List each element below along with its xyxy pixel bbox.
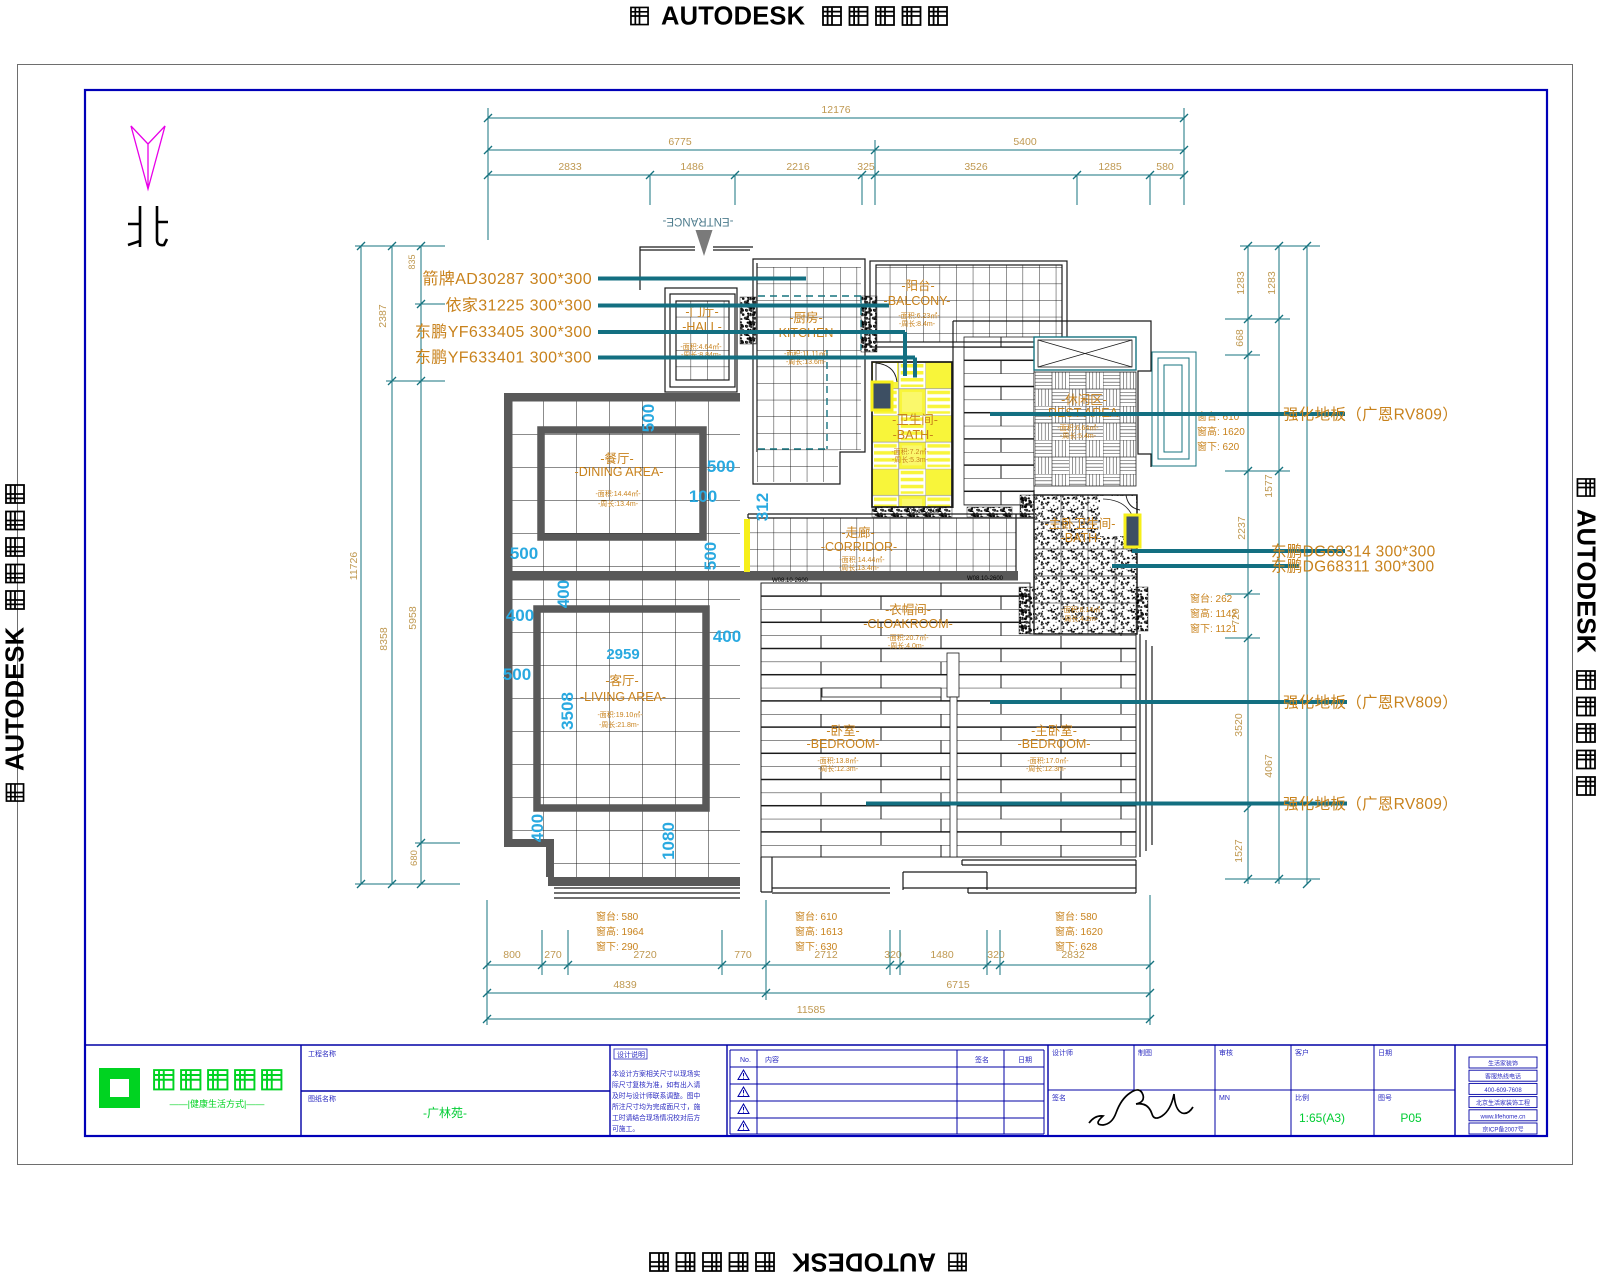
- svg-text:-面积:6.23㎡-: -面积:6.23㎡-: [898, 311, 940, 320]
- svg-text:W08.10-2600: W08.10-2600: [967, 576, 1004, 582]
- svg-text:-面积:13.8㎡-: -面积:13.8㎡-: [817, 756, 859, 765]
- svg-text:可施工。: 可施工。: [612, 1124, 639, 1133]
- svg-text:-周长:4.0m-: -周长:4.0m-: [888, 641, 925, 650]
- svg-text:箭牌AD30287 300*300: 箭牌AD30287 300*300: [422, 269, 592, 288]
- svg-text:强化地板（广恩RV809）: 强化地板（广恩RV809）: [1283, 694, 1458, 712]
- svg-text:日期: 日期: [1378, 1049, 1392, 1057]
- svg-text:3526: 3526: [964, 161, 988, 173]
- svg-text:-BATH-: -BATH-: [893, 428, 934, 442]
- svg-text:400: 400: [554, 580, 573, 608]
- svg-text:-周长:8.4m-: -周长:8.4m-: [899, 319, 936, 328]
- svg-text:窗下: 1121: 窗下: 1121: [1190, 622, 1237, 635]
- svg-text:400-609-7608: 400-609-7608: [1484, 1088, 1522, 1094]
- svg-text:6715: 6715: [946, 979, 970, 991]
- svg-text:-周长:13.4m-: -周长:13.4m-: [598, 499, 639, 508]
- svg-text:依家31225 300*300: 依家31225 300*300: [445, 297, 592, 315]
- svg-text:设计说明: 设计说明: [617, 1050, 645, 1059]
- svg-text:1285: 1285: [1098, 161, 1122, 173]
- svg-text:所注尺寸均为完成面尺寸，施: 所注尺寸均为完成面尺寸，施: [612, 1102, 701, 1111]
- svg-text:5400: 5400: [1013, 136, 1037, 148]
- svg-text:325: 325: [857, 161, 875, 173]
- svg-text:-周长:13.4m-: -周长:13.4m-: [839, 563, 880, 572]
- svg-text:P05: P05: [1400, 1111, 1422, 1125]
- svg-text:窗高: 1620: 窗高: 1620: [1197, 425, 1245, 438]
- svg-text:窗台: 580: 窗台: 580: [596, 910, 639, 923]
- svg-text:-BEDROOM-: -BEDROOM-: [807, 737, 880, 751]
- svg-text:12176: 12176: [821, 104, 850, 116]
- svg-text:-BEDROOM-: -BEDROOM-: [1018, 737, 1091, 751]
- svg-text:2833: 2833: [558, 161, 582, 173]
- svg-text:-周长:21.8m-: -周长:21.8m-: [599, 720, 640, 729]
- svg-text:6775: 6775: [668, 136, 692, 148]
- svg-text:500: 500: [503, 665, 531, 684]
- svg-text:-周长:4.2m-: -周长:4.2m-: [1062, 614, 1099, 623]
- svg-text:3508: 3508: [558, 692, 577, 730]
- svg-text:5958: 5958: [407, 606, 419, 630]
- svg-text:北京生活家装饰工程: 北京生活家装饰工程: [1476, 1099, 1530, 1107]
- svg-text:-LIVING AREA-: -LIVING AREA-: [580, 690, 666, 704]
- svg-text:Y05.10-2600: Y05.10-2600: [905, 509, 940, 515]
- svg-text:1283: 1283: [1235, 271, 1247, 295]
- svg-text:-衣帽间-: -衣帽间-: [885, 602, 931, 617]
- svg-text:窗台: 610: 窗台: 610: [795, 910, 838, 923]
- svg-text:-面积:6.64㎡-: -面积:6.64㎡-: [1057, 423, 1099, 432]
- svg-text:320: 320: [987, 949, 1005, 961]
- svg-text:本设计方案相关尺寸以现场实: 本设计方案相关尺寸以现场实: [612, 1069, 701, 1078]
- svg-text:际尺寸复核为准，如有出入请: 际尺寸复核为准，如有出入请: [612, 1080, 701, 1089]
- svg-text:2216: 2216: [786, 161, 810, 173]
- svg-text:770: 770: [734, 949, 752, 961]
- svg-text:窗高: 1142: 窗高: 1142: [1190, 607, 1237, 620]
- svg-text:-卫生间-: -卫生间-: [892, 413, 938, 427]
- svg-text:400: 400: [528, 814, 547, 842]
- svg-text:设计师: 设计师: [1052, 1048, 1073, 1057]
- svg-text:制图: 制图: [1138, 1048, 1152, 1057]
- svg-text:www.lifehome.cn: www.lifehome.cn: [1479, 1114, 1525, 1120]
- svg-text:668: 668: [1234, 329, 1246, 347]
- svg-text:-厨房-: -厨房-: [789, 310, 822, 325]
- svg-text:2387: 2387: [377, 304, 389, 328]
- svg-text:-周长:5.3m-: -周长:5.3m-: [892, 455, 929, 464]
- svg-text:窗高: 1620: 窗高: 1620: [1055, 925, 1103, 938]
- svg-text:-周长:12.3m-: -周长:12.3m-: [1026, 764, 1067, 773]
- svg-text:内容: 内容: [765, 1055, 779, 1064]
- svg-text:835: 835: [407, 254, 417, 269]
- svg-text:MN: MN: [1219, 1095, 1230, 1102]
- svg-text:1283: 1283: [1266, 271, 1278, 295]
- svg-text:400: 400: [713, 627, 741, 646]
- svg-text:——|健康生活方式|——: ——|健康生活方式|——: [170, 1098, 265, 1109]
- svg-text:生活家装饰: 生活家装饰: [1488, 1060, 1518, 1068]
- svg-text:工时请结合现场情况校对后方: 工时请结合现场情况校对后方: [612, 1113, 701, 1122]
- svg-text:强化地板（广恩RV809）: 强化地板（广恩RV809）: [1283, 795, 1458, 813]
- svg-text:及时与设计师联系调整。图中: 及时与设计师联系调整。图中: [612, 1091, 701, 1100]
- svg-text:窗高: 1613: 窗高: 1613: [795, 925, 843, 938]
- svg-text:工程名称: 工程名称: [308, 1049, 336, 1058]
- svg-text:图号: 图号: [1378, 1094, 1392, 1102]
- svg-text:客服热线电话: 客服热线电话: [1485, 1073, 1521, 1081]
- svg-text:AUTODESK: AUTODESK: [661, 3, 806, 31]
- svg-text:-卧室-: -卧室-: [826, 723, 859, 738]
- svg-text:4067: 4067: [1263, 754, 1275, 778]
- svg-text:-周长:5.4m-: -周长:5.4m-: [1060, 431, 1097, 440]
- svg-text:312: 312: [753, 493, 772, 521]
- svg-text:1527: 1527: [1233, 839, 1245, 863]
- svg-text:窗下: 620: 窗下: 620: [1197, 440, 1240, 453]
- svg-text:No.: No.: [740, 1057, 751, 1064]
- svg-text:580: 580: [1156, 161, 1174, 173]
- svg-text:窗下: 290: 窗下: 290: [596, 940, 639, 953]
- svg-text:东鹏DG68311 300*300: 东鹏DG68311 300*300: [1271, 558, 1434, 576]
- svg-text:强化地板（广恩RV809）: 强化地板（广恩RV809）: [1283, 406, 1458, 424]
- svg-text:1480: 1480: [930, 949, 954, 961]
- svg-text:-CORRIDOR-: -CORRIDOR-: [821, 540, 897, 554]
- svg-text:窗台: 580: 窗台: 580: [1055, 910, 1098, 923]
- svg-text:签名: 签名: [1052, 1093, 1066, 1102]
- svg-text:1080: 1080: [659, 822, 678, 860]
- svg-text:AUTODESK: AUTODESK: [791, 1248, 936, 1276]
- svg-text:-走廊-: -走廊-: [841, 525, 874, 540]
- svg-text:-广林苑-: -广林苑-: [423, 1106, 467, 1120]
- svg-text:AUTODESK: AUTODESK: [1572, 509, 1600, 654]
- svg-text:-面积:8.14㎡-: -面积:8.14㎡-: [1061, 605, 1103, 614]
- svg-text:-BALCONY-: -BALCONY-: [884, 294, 951, 308]
- svg-text:1577: 1577: [1263, 474, 1275, 498]
- svg-text:8358: 8358: [378, 627, 390, 651]
- svg-text:窗高: 1964: 窗高: 1964: [596, 925, 644, 938]
- svg-text:窗下: 628: 窗下: 628: [1055, 940, 1098, 953]
- svg-text:W08.10-2600: W08.10-2600: [772, 578, 809, 584]
- svg-text:2959: 2959: [606, 646, 639, 663]
- svg-text:1486: 1486: [680, 161, 704, 173]
- svg-text:-BATH-: -BATH-: [1061, 531, 1102, 545]
- svg-text:270: 270: [544, 949, 562, 961]
- svg-text:窗台: 610: 窗台: 610: [1197, 410, 1240, 423]
- svg-text:-餐厅-: -餐厅-: [600, 451, 633, 466]
- svg-text:-主卧室-: -主卧室-: [1031, 723, 1077, 738]
- svg-text:-面积:14.44㎡-: -面积:14.44㎡-: [839, 555, 885, 564]
- svg-text:窗下: 630: 窗下: 630: [795, 940, 838, 953]
- svg-text:4839: 4839: [613, 979, 637, 991]
- svg-text:2237: 2237: [1236, 516, 1248, 540]
- svg-text:AUTODESK: AUTODESK: [2, 626, 30, 771]
- svg-text:500: 500: [639, 404, 658, 432]
- svg-text:680: 680: [409, 850, 420, 866]
- svg-text:-客厅-: -客厅-: [605, 673, 638, 688]
- svg-text:日期: 日期: [1018, 1056, 1032, 1064]
- svg-text:窗台: 262: 窗台: 262: [1190, 592, 1233, 605]
- svg-text:-主卧卫生间-: -主卧卫生间-: [1045, 517, 1116, 531]
- svg-text:500: 500: [707, 457, 735, 476]
- svg-text:-休闲区-: -休闲区-: [1061, 393, 1107, 407]
- svg-text:11726: 11726: [348, 552, 360, 581]
- svg-text:东鹏YF633401 300*300: 东鹏YF633401 300*300: [415, 349, 592, 367]
- svg-text:100: 100: [689, 487, 717, 506]
- svg-text:-DINING AREA-: -DINING AREA-: [575, 465, 664, 479]
- svg-text:-面积:17.0㎡-: -面积:17.0㎡-: [1027, 756, 1069, 765]
- svg-text:1:65(A3): 1:65(A3): [1299, 1111, 1345, 1125]
- svg-text:-周长:12.3m-: -周长:12.3m-: [818, 764, 859, 773]
- svg-text:-面积:7.2㎡-: -面积:7.2㎡-: [891, 447, 929, 456]
- svg-text:500: 500: [510, 544, 538, 563]
- svg-text:审核: 审核: [1219, 1048, 1233, 1057]
- svg-text:400: 400: [506, 606, 534, 625]
- svg-text:500: 500: [701, 542, 720, 570]
- svg-text:东鹏YF633405 300*300: 东鹏YF633405 300*300: [415, 323, 592, 341]
- svg-text:比例: 比例: [1295, 1093, 1309, 1102]
- svg-text:-面积:14.44㎡-: -面积:14.44㎡-: [595, 489, 641, 498]
- svg-text:-阳台-: -阳台-: [901, 278, 934, 293]
- svg-text:3520: 3520: [1233, 713, 1245, 737]
- svg-text:-面积:19.10㎡-: -面积:19.10㎡-: [597, 710, 643, 719]
- svg-text:320: 320: [884, 949, 902, 961]
- svg-text:-面积:20.7㎡-: -面积:20.7㎡-: [887, 633, 929, 642]
- svg-text:-ENTRANCE-: -ENTRANCE-: [662, 215, 733, 227]
- svg-text:-CLOAKROOM-: -CLOAKROOM-: [863, 617, 953, 631]
- svg-text:11585: 11585: [797, 1004, 826, 1016]
- svg-text:图纸名称: 图纸名称: [308, 1094, 336, 1103]
- svg-text:京ICP备2007号: 京ICP备2007号: [1482, 1126, 1523, 1134]
- svg-text:客户: 客户: [1295, 1048, 1309, 1057]
- svg-text:-面积:4.64㎡-: -面积:4.64㎡-: [680, 342, 722, 351]
- svg-text:800: 800: [503, 949, 521, 961]
- svg-text:签名: 签名: [975, 1055, 989, 1064]
